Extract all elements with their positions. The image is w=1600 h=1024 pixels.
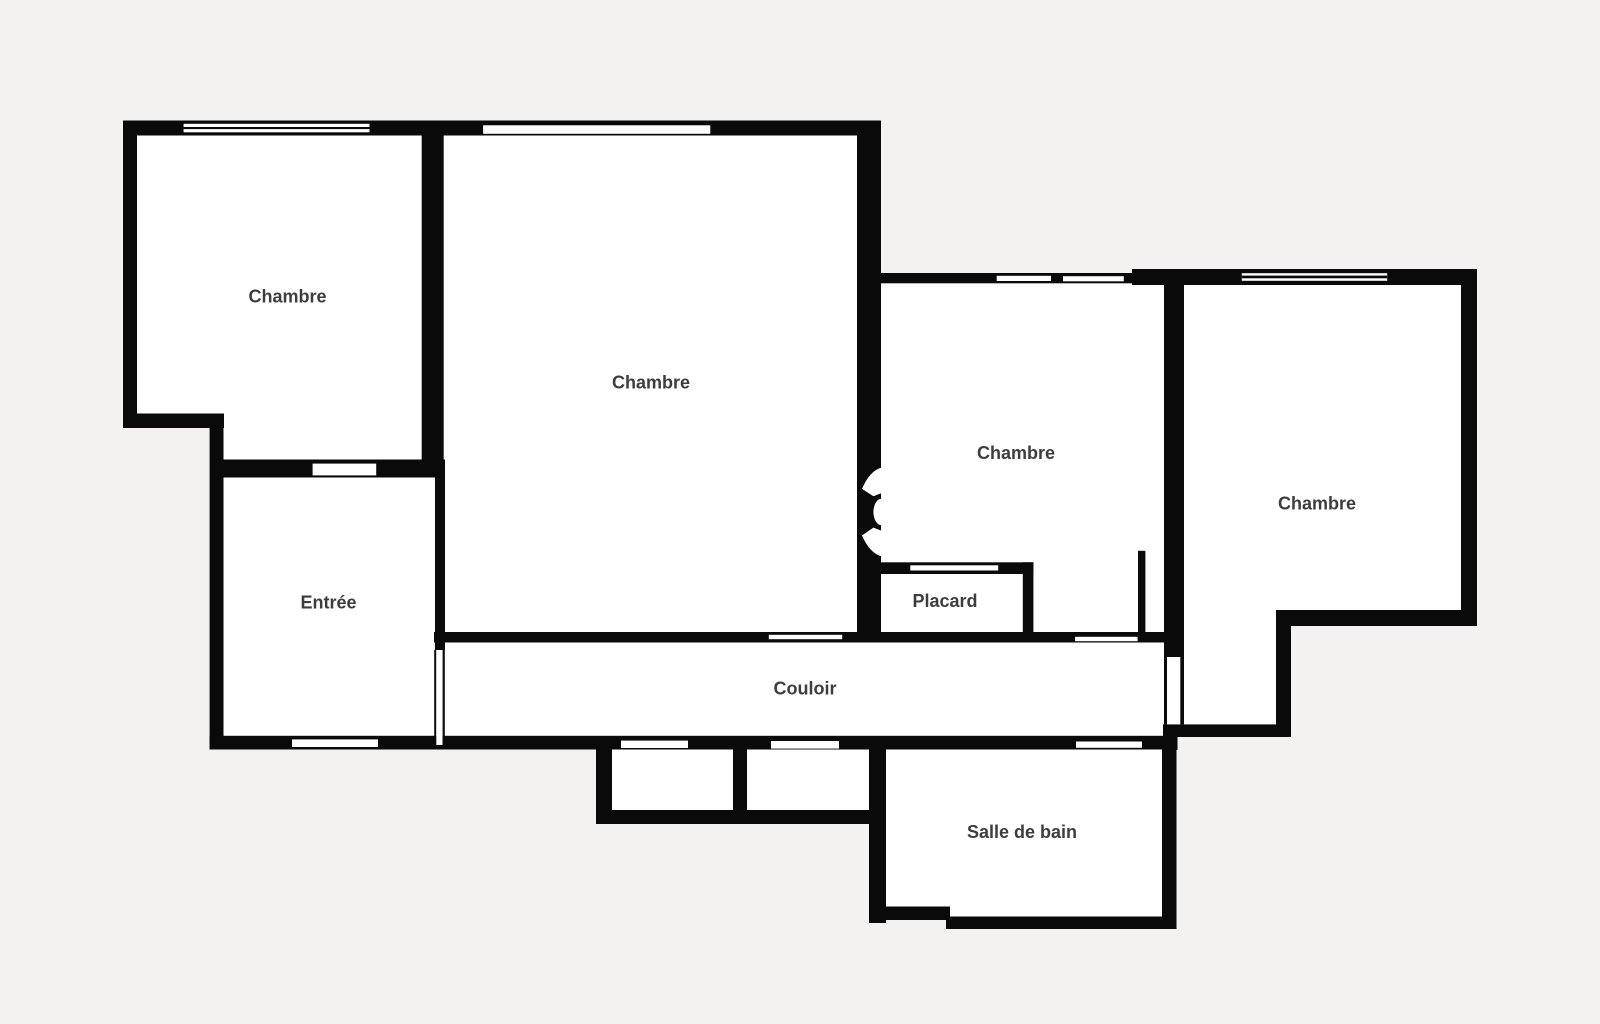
svg-text:Placard: Placard [912,591,977,611]
svg-text:Salle de bain: Salle de bain [967,822,1077,842]
svg-text:Chambre: Chambre [248,287,326,307]
svg-text:Couloir: Couloir [774,679,837,699]
svg-text:Entrée: Entrée [300,593,356,613]
svg-text:Chambre: Chambre [1278,494,1356,514]
svg-text:Chambre: Chambre [612,373,690,393]
svg-text:Chambre: Chambre [977,443,1055,463]
